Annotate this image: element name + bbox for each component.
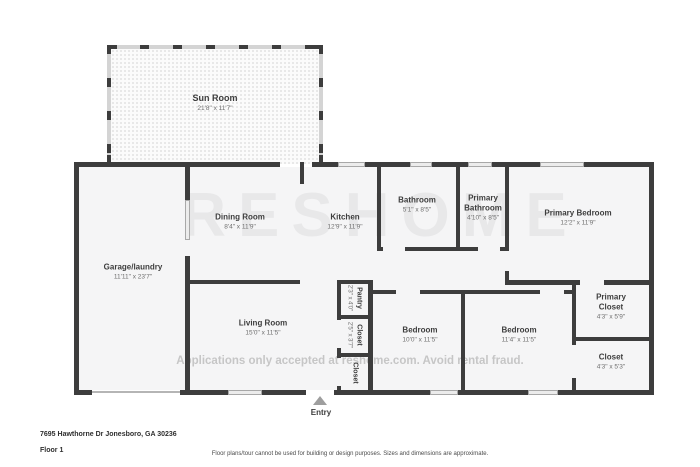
window [228, 390, 262, 395]
room-name: Kitchen [327, 212, 362, 222]
room-name: Primary Closet [587, 292, 635, 312]
room-label-kitchen: Kitchen 12'9" x 11'9" [327, 212, 362, 231]
room-label-garage-laundry: Garage/laundry 11'11" x 23'7" [104, 262, 163, 281]
window [430, 390, 458, 395]
window [410, 162, 432, 167]
wall-stub-dining-kitchen [300, 162, 304, 184]
room-name: Bathroom [398, 195, 436, 205]
room-dims: 21'8" x 11'7" [193, 105, 238, 113]
room-label-primary-closet: Primary Closet 4'3" x 5'9" [587, 292, 635, 321]
room-label-closet-br2: Closet 4'3" x 5'3" [597, 352, 625, 371]
wall-sunroom-left [107, 45, 111, 166]
room-label-primary-bathroom: Primary Bathroom 4'10" x 8'5" [457, 193, 509, 222]
wall-livingroom-top [188, 280, 300, 284]
room-dims: 11'11" x 23'7" [104, 273, 163, 281]
room-label-living-room: Living Room 15'0" x 11'5" [239, 318, 287, 337]
entry-arrow-icon [313, 396, 327, 405]
room-label-closet-entry: Closet [350, 362, 359, 383]
disclaimer-text: Floor plans/tour cannot be used for buil… [0, 451, 700, 457]
room-name: Primary Bathroom [457, 193, 509, 213]
room-label-bedroom-2: Bedroom 11'4" x 11'5" [501, 325, 536, 344]
room-dims: 8'4" x 11'9" [215, 223, 265, 231]
wall-bedroom-top [420, 290, 540, 294]
wall-sunroom-right [319, 45, 323, 166]
room-dims: 5'1" x 8'5" [398, 206, 436, 214]
wall-bathroom-bottom [377, 247, 383, 251]
room-dims: 4'10" x 8'5" [457, 214, 509, 222]
room-name: Pantry [354, 285, 363, 311]
window-interior [185, 200, 190, 240]
wall-garage [185, 256, 190, 395]
room-name: Living Room [239, 318, 287, 328]
wall-closet-left [337, 386, 341, 395]
room-dims: 2'3" x 4'0" [345, 285, 353, 311]
room-name: Bedroom [402, 325, 437, 335]
wall-corner [107, 45, 117, 49]
room-label-dining-room: Dining Room 8'4" x 11'9" [215, 212, 265, 231]
window [540, 162, 584, 167]
wall-closet-divider [340, 353, 368, 357]
room-name: Closet [350, 362, 359, 383]
wall-bedroom-top [373, 290, 396, 294]
wall-bedroom2-right [572, 280, 576, 345]
window [468, 162, 492, 167]
wall-bottom [74, 390, 92, 395]
wall-left [74, 162, 79, 395]
room-label-sun-room: Sun Room 21'8" x 11'7" [193, 93, 238, 113]
wall-pantry-left [337, 280, 341, 320]
wall-bedroom2-right [572, 378, 576, 395]
wall-top [74, 162, 280, 167]
wall-kitchen-bathroom [377, 162, 381, 251]
room-dims: 4'3" x 5'3" [597, 363, 625, 371]
room-label-closet-hall: Closet 2'5" x 3'7" [345, 322, 362, 348]
wall-primary-bedroom-bottom [604, 280, 654, 285]
room-name: Primary Bedroom [544, 208, 611, 218]
wall-sunroom-top [107, 45, 323, 49]
wall-right [649, 162, 654, 395]
room-dims: 11'4" x 11'5" [501, 336, 536, 344]
room-label-bathroom: Bathroom 5'1" x 8'5" [398, 195, 436, 214]
entry-label: Entry [311, 408, 331, 417]
room-name: Sun Room [193, 93, 238, 104]
wall-bottom [334, 390, 654, 395]
wall-pantry-closet-divider [340, 315, 368, 319]
wall-primary-closet-divider [576, 337, 654, 341]
window [528, 390, 558, 395]
room-name: Closet [597, 352, 625, 362]
room-dims: 4'3" x 5'9" [587, 313, 635, 321]
room-dims: 2'5" x 3'7" [345, 322, 353, 348]
room-dims: 10'0" x 11'5" [402, 336, 437, 344]
wall-corner [313, 45, 323, 49]
wall-primary-bedroom-bottom [509, 280, 580, 285]
room-label-primary-bedroom: Primary Bedroom 12'2" x 11'9" [544, 208, 611, 227]
room-dims: 12'2" x 11'9" [544, 219, 611, 227]
room-label-bedroom-1: Bedroom 10'0" x 11'5" [402, 325, 437, 344]
room-name: Bedroom [501, 325, 536, 335]
wall-pantry-right [368, 280, 373, 395]
address-text: 7695 Hawthorne Dr Jonesboro, GA 30236 [40, 431, 177, 438]
wall-bedroom-divider [461, 294, 465, 395]
wall-bathroom-bottom [405, 247, 478, 251]
room-dims: 15'0" x 11'5" [239, 329, 287, 337]
floor-plan-page: RESHOME Applications only accepted at re… [0, 0, 700, 467]
room-name: Closet [354, 322, 363, 348]
wall-bathroom-bottom [500, 247, 509, 251]
wall-bedroom-top [564, 290, 572, 294]
room-name: Garage/laundry [104, 262, 163, 272]
room-name: Dining Room [215, 212, 265, 222]
room-dims: 12'9" x 11'9" [327, 223, 362, 231]
window [338, 162, 365, 167]
garage-door-line [92, 391, 180, 393]
room-label-pantry: Pantry 2'3" x 4'0" [345, 285, 362, 311]
